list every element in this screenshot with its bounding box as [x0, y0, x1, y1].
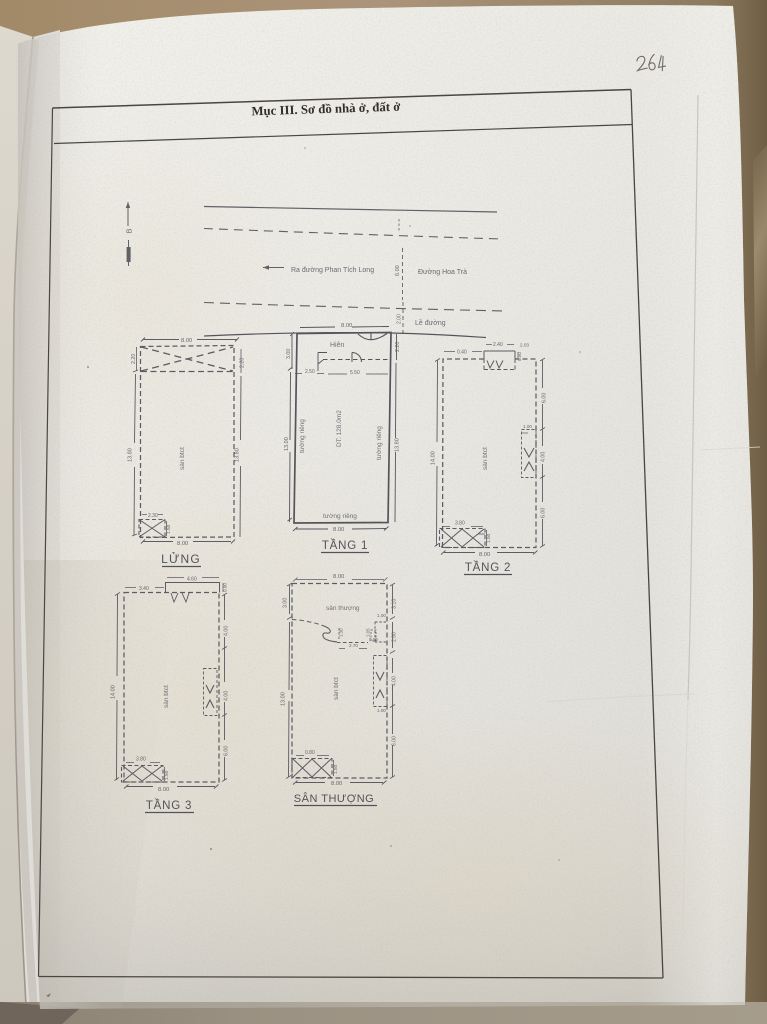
svg-text:2.70: 2.70: [349, 643, 358, 648]
svg-text:13.80: 13.80: [235, 448, 241, 462]
svg-text:8.00: 8.00: [341, 323, 352, 329]
svg-text:4.00: 4.00: [392, 676, 398, 686]
svg-text:1.00: 1.00: [377, 613, 386, 618]
svg-text:TẦNG 1: TẦNG 1: [322, 539, 368, 552]
svg-text:6.00: 6.00: [392, 736, 398, 746]
svg-text:tường riêng: tường riêng: [323, 513, 357, 520]
svg-text:Lề đường: Lề đường: [415, 318, 446, 327]
svg-text:sàn btct: sàn btct: [482, 447, 489, 470]
svg-text:sàn btct: sàn btct: [179, 447, 186, 470]
svg-text:3.00: 3.00: [286, 349, 292, 359]
svg-text:2.00: 2.00: [397, 314, 403, 324]
svg-text:6.00: 6.00: [224, 746, 230, 756]
svg-text:3.00: 3.00: [283, 598, 289, 608]
svg-text:5.50: 5.50: [350, 370, 360, 376]
svg-text:2.90: 2.90: [392, 632, 398, 642]
svg-text:1.50: 1.50: [164, 770, 170, 780]
svg-text:4.00: 4.00: [541, 452, 547, 462]
svg-text:13.00: 13.00: [284, 437, 290, 451]
svg-text:8.00: 8.00: [333, 527, 344, 533]
svg-text:8.00: 8.00: [479, 552, 490, 558]
svg-text:sàn btct: sàn btct: [163, 685, 170, 708]
svg-text:2.40: 2.40: [493, 342, 503, 348]
svg-text:13.00: 13.00: [281, 692, 287, 706]
svg-text:1.30: 1.30: [339, 628, 344, 637]
svg-text:8.00: 8.00: [181, 338, 192, 344]
svg-text:2.03: 2.03: [520, 343, 529, 348]
svg-text:3.40: 3.40: [139, 586, 149, 592]
svg-text:2.20: 2.20: [131, 354, 137, 364]
svg-text:4.00: 4.00: [224, 691, 230, 701]
svg-text:2.30: 2.30: [148, 513, 158, 519]
svg-text:B: B: [125, 228, 134, 233]
svg-text:Đường Hoa Trà: Đường Hoa Trà: [418, 269, 467, 276]
svg-text:1.50: 1.50: [333, 764, 339, 774]
svg-text:1.00: 1.00: [377, 708, 386, 713]
svg-text:3.10: 3.10: [392, 599, 398, 609]
svg-text:Hiên: Hiên: [330, 342, 345, 349]
svg-text:6.00: 6.00: [541, 508, 547, 518]
svg-text:8.00: 8.00: [177, 541, 188, 547]
svg-text:DT: 128.0m2: DT: 128.0m2: [336, 410, 343, 447]
svg-text:1.05: 1.05: [366, 628, 371, 637]
svg-text:6.00: 6.00: [395, 265, 401, 276]
svg-text:13.80: 13.80: [128, 448, 134, 462]
svg-text:sân thượng: sân thượng: [326, 605, 360, 612]
svg-text:LỬNG: LỬNG: [161, 551, 201, 566]
svg-text:6.00: 6.00: [542, 393, 548, 403]
svg-text:3.80: 3.80: [455, 521, 465, 527]
svg-text:13.80: 13.80: [395, 438, 401, 452]
svg-text:2.20: 2.20: [395, 342, 401, 352]
svg-text:0.80: 0.80: [305, 750, 315, 756]
svg-text:0.60: 0.60: [369, 637, 378, 642]
svg-text:14.00: 14.00: [431, 451, 437, 465]
svg-text:tường riêng: tường riêng: [299, 419, 306, 453]
svg-text:8.00: 8.00: [333, 574, 344, 580]
svg-text:1.50: 1.50: [486, 533, 492, 543]
svg-text:1.50: 1.50: [166, 524, 172, 534]
svg-text:TẦNG 3: TẦNG 3: [146, 799, 192, 812]
svg-text:8.00: 8.00: [331, 781, 342, 787]
svg-text:sàn btct: sàn btct: [333, 677, 340, 700]
svg-text:0.90: 0.90: [223, 583, 228, 592]
svg-text:2.50: 2.50: [305, 369, 315, 375]
svg-text:3.80: 3.80: [136, 757, 146, 763]
svg-text:8.00: 8.00: [158, 787, 169, 793]
svg-text:TẦNG 2: TẦNG 2: [465, 561, 511, 574]
svg-text:4.00: 4.00: [224, 626, 230, 636]
svg-text:4.60: 4.60: [187, 577, 197, 583]
svg-text:0.50: 0.50: [517, 352, 522, 361]
svg-text:0.40: 0.40: [457, 350, 467, 356]
svg-text:tường riêng: tường riêng: [376, 426, 383, 460]
svg-text:1.00: 1.00: [523, 424, 532, 429]
svg-text:SÂN THƯỢNG: SÂN THƯỢNG: [294, 792, 374, 805]
svg-text:14.00: 14.00: [111, 685, 117, 699]
svg-text:2.20: 2.20: [240, 358, 246, 368]
svg-text:Ra đường Phan Tích Long: Ra đường Phan Tích Long: [291, 267, 374, 274]
